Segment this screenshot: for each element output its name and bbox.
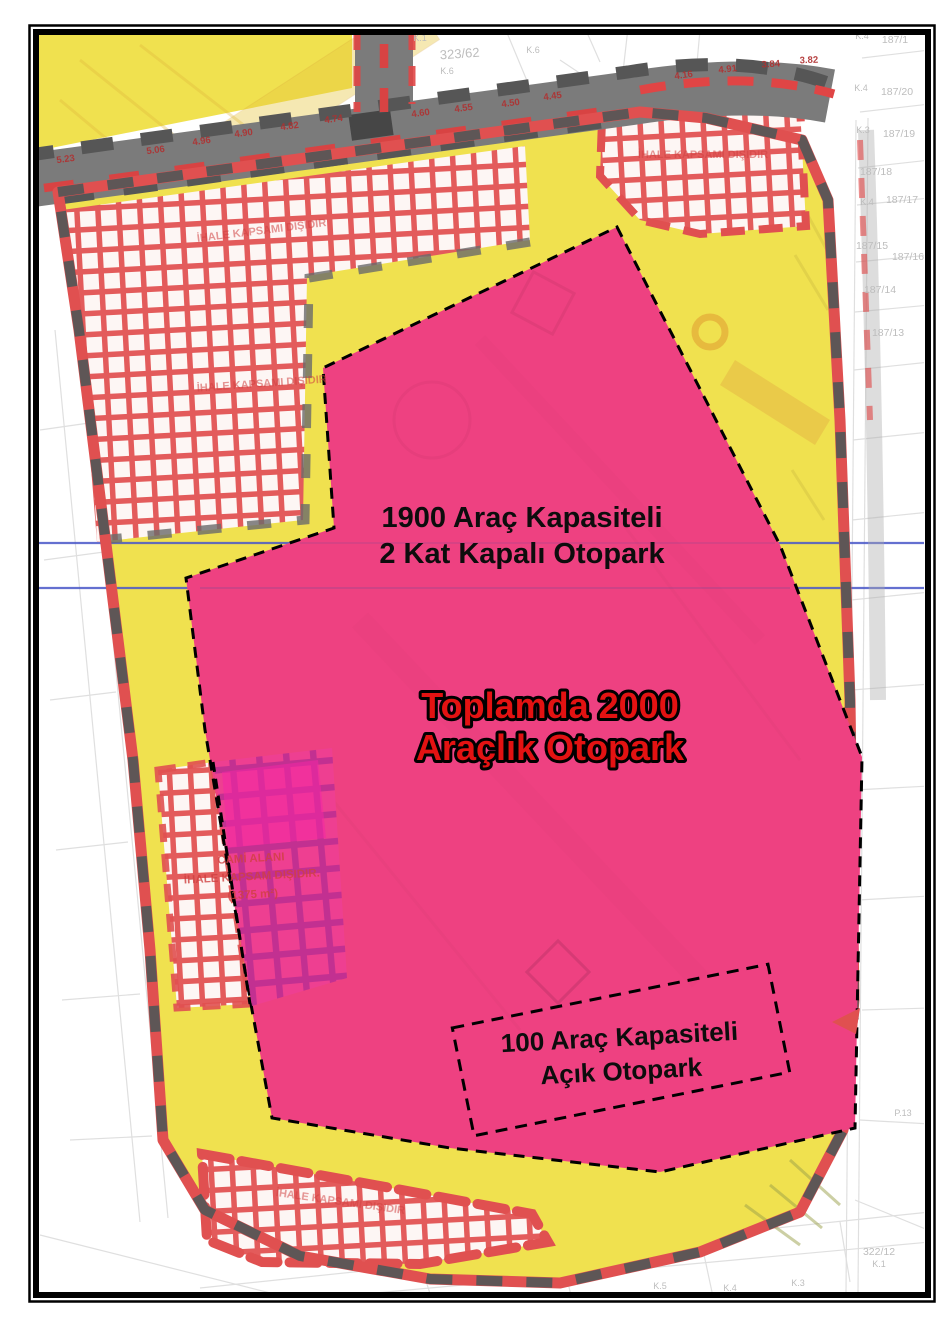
block-label: K.4 [723,1283,737,1293]
block-label: K.6 [526,45,540,55]
parcel-label: 187/16 [892,251,924,263]
block-label: K.4 [860,197,874,207]
parcel-label: 187/19 [883,128,915,140]
plan-map-canvas: 5.23 5.06 4.96 4.90 4.82 4.74 4.60 4.55 … [0,0,950,1341]
excluded-zone-label: İHALE KAPSAMI DIŞIDIR [638,148,768,161]
block-label: P.13 [894,1108,911,1118]
block-label: K.1 [872,1259,886,1269]
parcel-label: 187/18 [860,166,892,178]
total-capacity-label: Toplamda 2000 Araçlık Otopark [416,685,685,768]
block-label: K.3 [856,125,870,135]
covered-parking-label-line1: 1900 Araç Kapasiteli [381,502,662,534]
block-label: K.6 [440,66,454,76]
parcel-label: 187/20 [881,86,913,98]
covered-parking-label-line2: 2 Kat Kapalı Otopark [379,538,665,570]
parcel-label: 323/62 [439,45,480,63]
mosque-zone-bright-patch [222,760,326,848]
elevation-label: 4.91 [718,63,738,76]
parcel-label: 187/1 [882,34,908,46]
parcel-label: 322/12 [863,1246,895,1258]
parcel-label: 187/15 [856,240,888,252]
parcel-label: 187/13 [872,327,904,339]
plan-map-svg: 5.23 5.06 4.96 4.90 4.82 4.74 4.60 4.55 … [0,0,950,1341]
block-label: K.5 [653,1281,667,1291]
block-label: K.3 [791,1278,805,1288]
total-capacity-label-line2: Araçlık Otopark [416,727,685,768]
elevation-label: 3.82 [799,55,818,67]
parcel-label: 187/14 [864,284,896,296]
elevation-label: 3.84 [761,58,781,70]
total-capacity-label-line1: Toplamda 2000 [421,685,678,726]
parcel-label: 187/17 [886,194,918,206]
block-label: K.4 [854,83,868,93]
